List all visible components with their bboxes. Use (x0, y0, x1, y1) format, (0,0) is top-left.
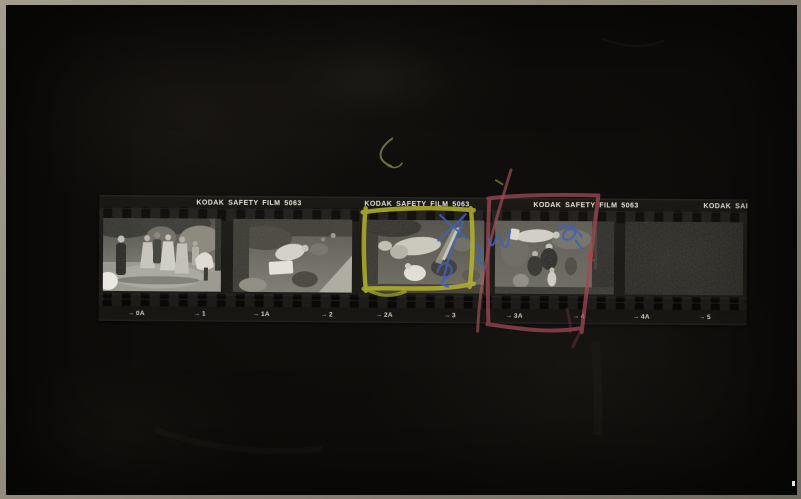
film-frame-0a (99, 212, 222, 292)
frame-marker-4: →4 (573, 313, 585, 320)
film-strip-graphic: KODAK SAFETY FILM 5063 KODAK SAFETY FILM… (99, 195, 748, 326)
frame-marker-3: →3 (444, 312, 456, 319)
film-strip: KODAK SAFETY FILM 5063 KODAK SAFETY FILM… (99, 195, 748, 326)
film-edge-text-partial: KODAK SAF (703, 203, 747, 210)
frame-marker-3a: →3A (506, 313, 523, 320)
film-edge-text: KODAK SAFETY FILM 5063 (364, 201, 469, 209)
frame-marker-2a: →2A (376, 312, 393, 319)
film-frame-2a (365, 217, 485, 294)
frame-marker-2: →2 (321, 311, 333, 318)
frame-marker-4a: →4A (633, 314, 650, 321)
frame-marker-1a: →1A (253, 311, 270, 318)
film-edge-text: KODAK SAFETY FILM 5063 (196, 200, 301, 208)
arrow-icon: → (444, 312, 451, 319)
arrow-icon: → (321, 311, 328, 318)
arrow-icon: → (253, 311, 260, 318)
photo-paper-black-field: KODAK SAFETY FILM 5063 KODAK SAFETY FILM… (6, 5, 797, 495)
film-frame-4a-blank (625, 222, 744, 296)
yellow-crescent-scratch (381, 139, 402, 168)
paper-edge-speck (792, 481, 795, 486)
yellow-tick-mark (495, 180, 503, 185)
arrow-icon: → (506, 313, 513, 320)
frame-marker-5: →5 (699, 314, 711, 321)
arrow-icon: → (194, 311, 201, 318)
film-edge-text: KODAK SAFETY FILM 5063 (533, 202, 638, 210)
arrow-icon: → (633, 314, 640, 321)
arrow-icon: → (128, 310, 135, 317)
frame-marker-0a: →0A (128, 310, 145, 317)
arrow-icon: → (573, 313, 580, 320)
arrow-icon: → (699, 314, 706, 321)
arrow-icon: → (376, 312, 383, 319)
contact-sheet-print: KODAK SAFETY FILM 5063 KODAK SAFETY FILM… (0, 0, 801, 499)
frame-marker-1: →1 (194, 311, 206, 318)
film-frame-3a (495, 221, 615, 295)
film-frame-1a (233, 219, 353, 293)
